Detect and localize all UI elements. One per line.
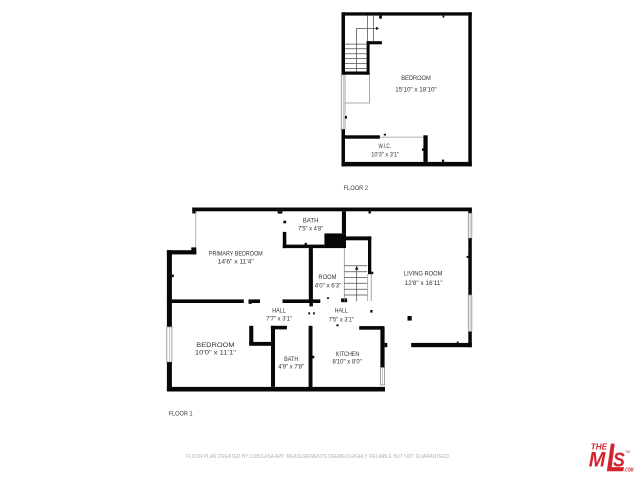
svg-text:FLOOR 1: FLOOR 1 [169, 410, 193, 417]
svg-text:PRIMARY BEDROOM: PRIMARY BEDROOM [209, 250, 263, 257]
svg-text:7'5" x 4'8": 7'5" x 4'8" [298, 226, 323, 233]
svg-text:LIVING ROOM: LIVING ROOM [404, 271, 443, 278]
svg-text:BEDROOM: BEDROOM [196, 342, 234, 349]
svg-text:14'6" x 11'4": 14'6" x 11'4" [218, 258, 254, 265]
svg-text:KITCHEN: KITCHEN [336, 351, 360, 358]
svg-text:7'5" x 3'1": 7'5" x 3'1" [329, 316, 354, 323]
svg-text:HALL: HALL [335, 307, 349, 314]
svg-text:12'8" x 16'11": 12'8" x 16'11" [405, 280, 443, 287]
svg-text:HALL: HALL [272, 308, 286, 315]
svg-text:7'7" x 3'1": 7'7" x 3'1" [266, 316, 292, 323]
svg-text:4'9" x 7'8": 4'9" x 7'8" [278, 363, 304, 370]
svg-text:FLOOR PLAN CREATED BY CUBICASA: FLOOR PLAN CREATED BY CUBICASA APP. MEAS… [186, 454, 449, 460]
svg-text:FLOOR 2: FLOOR 2 [344, 185, 369, 192]
svg-text:15'10" x 18'10": 15'10" x 18'10" [395, 87, 437, 94]
svg-text:10'3" x 3'1": 10'3" x 3'1" [371, 152, 399, 159]
svg-text:TM: TM [625, 450, 630, 454]
svg-text:BATH: BATH [284, 356, 298, 363]
svg-text:10'0" x 11'1": 10'0" x 11'1" [195, 350, 236, 357]
svg-text:4'0" x 6'3": 4'0" x 6'3" [315, 282, 342, 289]
svg-text:M: M [589, 448, 606, 471]
svg-text:W.I.C.: W.I.C. [378, 143, 391, 150]
svg-text:BATH: BATH [303, 218, 319, 225]
svg-text:ROOM: ROOM [318, 274, 336, 281]
svg-text:.COM: .COM [624, 467, 633, 473]
svg-text:8'10" x 8'0": 8'10" x 8'0" [332, 358, 361, 365]
svg-text:BEDROOM: BEDROOM [401, 75, 431, 82]
